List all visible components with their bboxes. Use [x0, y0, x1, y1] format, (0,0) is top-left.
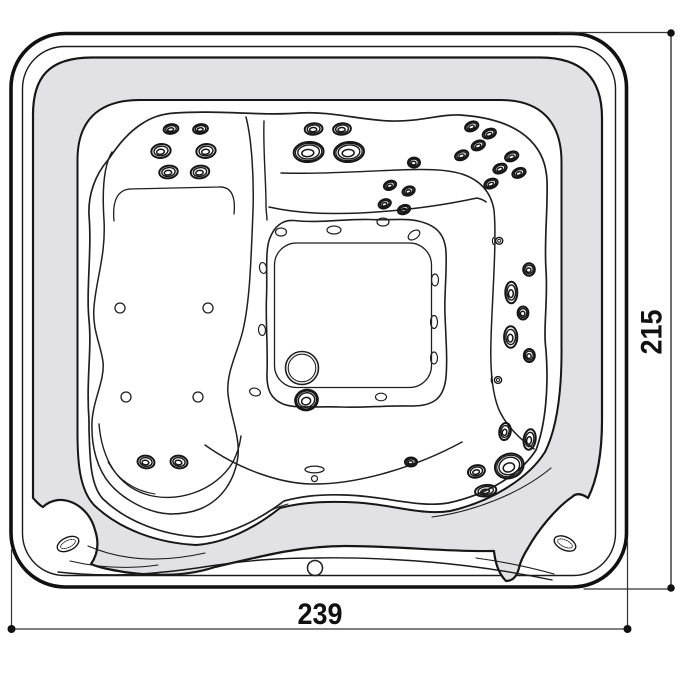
svg-text:215: 215 [636, 310, 669, 355]
svg-text:239: 239 [298, 598, 343, 631]
